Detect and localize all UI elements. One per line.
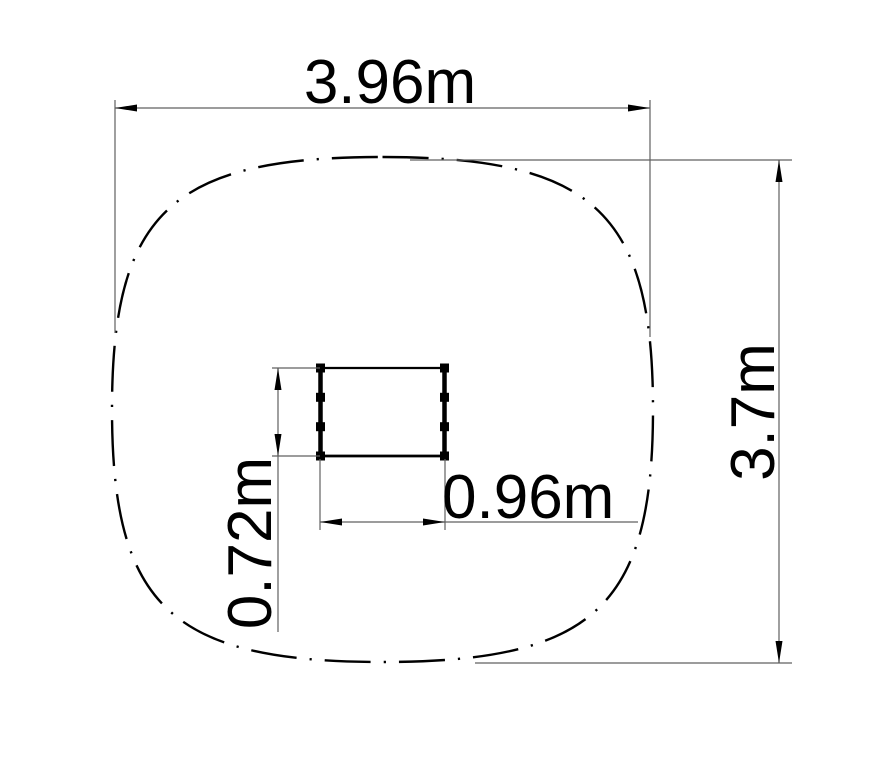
arrowhead-down-icon bbox=[776, 641, 783, 663]
dimension-overall-width: 3.96m bbox=[115, 48, 650, 337]
dimension-equipment-width: 0.96m bbox=[320, 459, 638, 532]
equipment-height-label: 0.72m bbox=[216, 457, 285, 629]
arrowhead-right-icon bbox=[628, 105, 650, 112]
plan-drawing: 3.96m 3.7m 0.96m 0.72m bbox=[0, 0, 879, 768]
arrowhead-up-icon bbox=[776, 160, 783, 182]
dimension-overall-height: 3.7m bbox=[410, 160, 792, 663]
arrowhead-left-icon bbox=[115, 105, 137, 112]
dimension-equipment-height: 0.72m bbox=[216, 368, 320, 632]
arrowhead-left-icon bbox=[320, 519, 342, 526]
overall-height-label: 3.7m bbox=[719, 343, 788, 481]
equipment-plan-rect bbox=[316, 364, 449, 461]
safety-area-outline bbox=[112, 157, 653, 662]
arrowhead-down-icon bbox=[275, 434, 282, 456]
arrowhead-up-icon bbox=[275, 368, 282, 390]
equipment-posts bbox=[316, 364, 449, 461]
drawing-canvas: 3.96m 3.7m 0.96m 0.72m bbox=[0, 0, 879, 768]
overall-width-label: 3.96m bbox=[304, 48, 476, 117]
equipment-width-label: 0.96m bbox=[442, 463, 614, 532]
